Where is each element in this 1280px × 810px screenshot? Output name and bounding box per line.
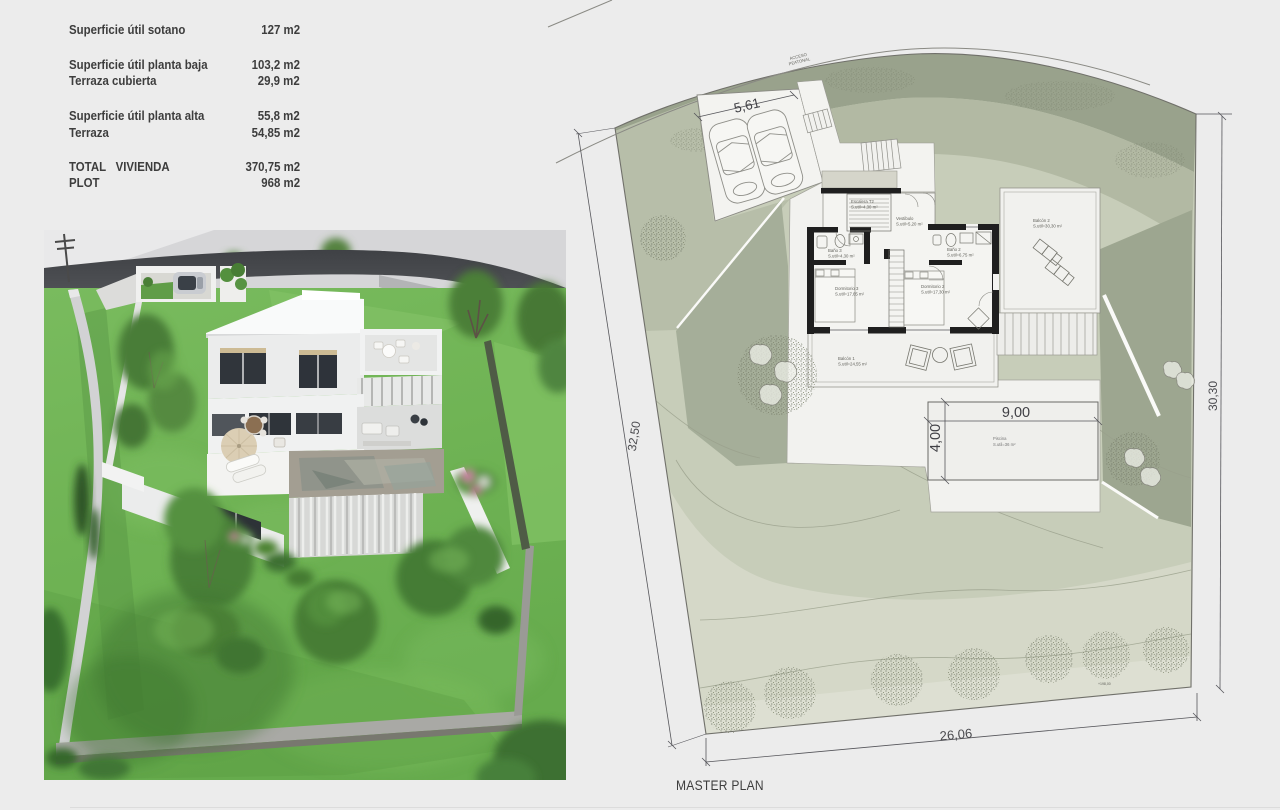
svg-text:S.util=6,75 m²: S.util=6,75 m² [947, 253, 974, 258]
svg-text:Dormitorio 2: Dormitorio 2 [921, 284, 945, 289]
svg-text:4,00: 4,00 [928, 424, 944, 452]
svg-text:Piscina: Piscina [993, 436, 1007, 441]
svg-text:Baño 3: Baño 3 [828, 248, 842, 253]
svg-text:Vestibulo: Vestibulo [896, 216, 914, 221]
svg-text:Escalera T2: Escalera T2 [851, 199, 874, 204]
svg-text:S.util=17,65 m²: S.util=17,65 m² [835, 292, 865, 297]
svg-text:+198,00: +198,00 [1098, 682, 1111, 686]
svg-text:9,00: 9,00 [1002, 405, 1030, 421]
svg-text:Balcón 2: Balcón 2 [1033, 218, 1050, 223]
svg-text:30,30: 30,30 [1206, 381, 1220, 411]
svg-text:S.util=5,20 m²: S.util=5,20 m² [896, 222, 923, 227]
svg-text:S.util=17,30 m²: S.util=17,30 m² [921, 290, 951, 295]
svg-text:S.util=24,55 m²: S.util=24,55 m² [838, 362, 868, 367]
svg-text:S.util=4,30 m²: S.util=4,30 m² [828, 254, 855, 259]
svg-text:S.util=36 m²: S.util=36 m² [993, 442, 1016, 447]
svg-text:Dormitorio 3: Dormitorio 3 [835, 286, 859, 291]
svg-text:Baño 2: Baño 2 [947, 247, 961, 252]
svg-text:26,06: 26,06 [939, 726, 973, 744]
svg-text:Balcón 1: Balcón 1 [838, 356, 855, 361]
svg-text:32,50: 32,50 [625, 420, 644, 452]
svg-text:S.util=4,30 m²: S.util=4,30 m² [851, 205, 878, 210]
svg-text:S.util=30,30 m²: S.util=30,30 m² [1033, 224, 1063, 229]
